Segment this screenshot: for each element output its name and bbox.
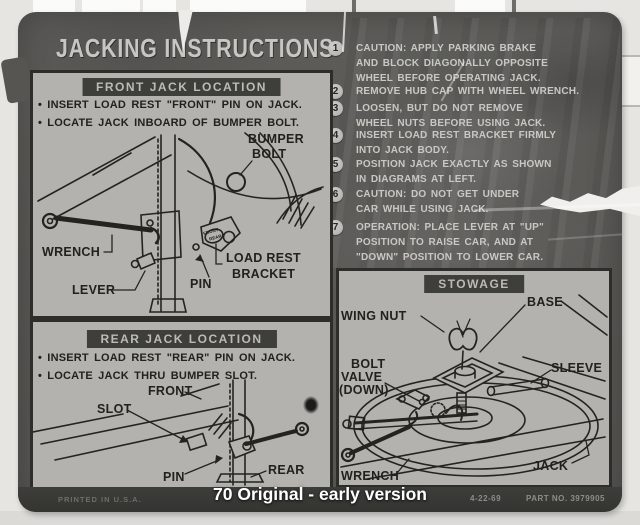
stowage-panel: STOWAGE — [336, 268, 612, 488]
front-jack-bullet-1: • INSERT LOAD REST "FRONT" PIN ON JACK. — [38, 99, 302, 111]
front-label-wrench: WRENCH — [42, 245, 100, 259]
instruction-item-5: 5 POSITION JACK EXACTLY AS SHOWNIN DIAGR… — [328, 157, 563, 187]
front-label-lever: LEVER — [72, 283, 115, 297]
front-label-bracket: BRACKET — [232, 267, 295, 281]
rear-jack-section: REAR JACK LOCATION • INSERT LOAD REST "R… — [33, 322, 330, 487]
printed-in-usa-text: PRINTED IN U.S.A. — [58, 495, 142, 504]
page-title: JACKING INSTRUCTIONS — [56, 33, 334, 64]
instruction-item-6: 6 CAUTION: DO NOT GET UNDERCAR WHILE USI… — [328, 187, 563, 217]
background-bottom-margin — [0, 511, 640, 525]
stowage-label-base: BASE — [527, 295, 563, 309]
front-label-load-rest: LOAD REST — [226, 251, 301, 265]
front-jack-header: FRONT JACK LOCATION — [82, 78, 281, 96]
rear-label-rear: REAR — [268, 463, 305, 477]
front-label-bumper: BUMPER — [248, 132, 304, 146]
front-jack-section: FRONT JACK LOCATION • INSERT LOAD REST "… — [33, 73, 330, 316]
jack-location-panel: FRONT JACK LOCATION • INSERT LOAD REST "… — [30, 70, 333, 490]
instruction-item-3: 3 LOOSEN, BUT DO NOT REMOVEWHEEL NUTS BE… — [328, 101, 563, 131]
instruction-item-1: 1 CAUTION: APPLY PARKING BRAKEAND BLOCK … — [328, 41, 563, 86]
stowage-label-sleeve: SLEEVE — [551, 361, 602, 375]
rear-label-front: FRONT — [148, 384, 193, 398]
caption-overlay: 70 Original - early version — [213, 484, 427, 505]
rear-label-pin: PIN — [163, 470, 185, 484]
instruction-item-4: 4 INSERT LOAD REST BRACKET FIRMLYINTO JA… — [328, 128, 563, 158]
revision-date: 4-22-69 — [470, 494, 501, 503]
instruction-item-7: 7 OPERATION: PLACE LEVER AT "UP"POSITION… — [328, 220, 563, 265]
ink-blob — [303, 396, 319, 414]
stowage-label-wing-nut: WING NUT — [341, 309, 407, 323]
front-label-bolt: BOLT — [252, 147, 286, 161]
stowage-label-down: (DOWN) — [339, 383, 389, 397]
scanned-jacking-instructions-label: JACKING INSTRUCTIONS 1 CAUTION: APPLY PA… — [0, 0, 640, 525]
stowage-label-wrench: WRENCH — [341, 469, 399, 483]
stowage-label-jack: JACK — [533, 459, 568, 473]
front-label-pin: PIN — [190, 277, 212, 291]
part-number: PART NO. 3979905 — [526, 494, 605, 503]
stowage-label-bolt: BOLT — [351, 357, 385, 371]
front-jack-bullet-2: • LOCATE JACK INBOARD OF BUMPER BOLT. — [38, 117, 299, 129]
rear-label-slot: SLOT — [97, 402, 132, 416]
stowage-label-valve: VALVE — [341, 370, 382, 384]
instruction-number: 1 — [328, 41, 343, 56]
